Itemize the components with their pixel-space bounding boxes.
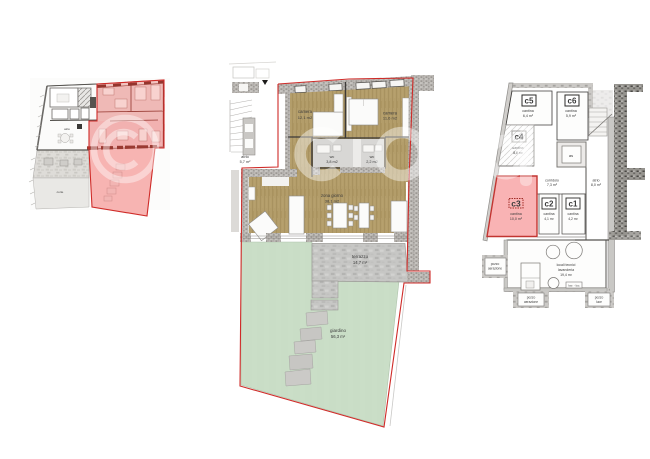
svg-text:8,0 m²: 8,0 m² — [591, 183, 602, 187]
svg-text:11,6 m2: 11,6 m2 — [383, 116, 398, 121]
svg-text:giardino: giardino — [330, 328, 347, 333]
svg-text:aerazione: aerazione — [524, 300, 538, 304]
svg-text:camera: camera — [298, 109, 313, 114]
svg-text:c1: c1 — [569, 200, 578, 209]
svg-text:10,0 m²: 10,0 m² — [510, 217, 523, 221]
svg-text:luce: luce — [596, 300, 602, 304]
svg-text:7,3 m²: 7,3 m² — [547, 183, 558, 187]
svg-text:c3: c3 — [511, 199, 521, 209]
svg-text:c2: c2 — [545, 200, 554, 209]
svg-text:5,9 m²: 5,9 m² — [566, 114, 577, 118]
svg-text:atrio: atrio — [593, 179, 600, 183]
svg-text:6,4 m²: 6,4 m² — [523, 114, 534, 118]
svg-text:atrio: atrio — [64, 127, 70, 131]
svg-text:cantina: cantina — [544, 212, 555, 216]
svg-text:56,3 m²: 56,3 m² — [331, 334, 346, 339]
svg-text:cantina: cantina — [510, 212, 522, 216]
svg-text:wc: wc — [370, 155, 375, 159]
svg-text:4,2 m²: 4,2 m² — [568, 217, 578, 221]
svg-text:14,7 m²: 14,7 m² — [353, 260, 368, 265]
svg-text:lav. - loc: lav. - loc — [569, 284, 580, 288]
svg-text:c5: c5 — [525, 97, 534, 106]
svg-text:5,7 m²: 5,7 m² — [240, 160, 251, 164]
svg-text:corridoio: corridoio — [545, 179, 559, 183]
svg-text:pozzo: pozzo — [595, 296, 604, 300]
svg-text:3,8 m2: 3,8 m2 — [326, 160, 338, 164]
svg-text:aerazione: aerazione — [488, 267, 502, 271]
svg-text:wc: wc — [330, 155, 335, 159]
svg-text:pozzo: pozzo — [491, 262, 500, 266]
svg-text:terrazzo: terrazzo — [352, 254, 369, 259]
svg-text:locali tecnici: locali tecnici — [557, 263, 576, 267]
svg-text:zona giorno: zona giorno — [321, 193, 344, 198]
svg-text:pozzo: pozzo — [527, 296, 536, 300]
svg-text:c6: c6 — [568, 97, 577, 106]
svg-text:cantina: cantina — [522, 109, 534, 113]
svg-text:cantina: cantina — [565, 109, 577, 113]
svg-text:corte: corte — [57, 190, 64, 194]
svg-text:as: as — [569, 153, 573, 158]
svg-text:cantina: cantina — [568, 212, 579, 216]
svg-text:atrio: atrio — [241, 154, 250, 159]
svg-text:19,4 m²: 19,4 m² — [560, 273, 573, 277]
svg-text:lavanderia: lavanderia — [558, 268, 574, 272]
svg-text:12,1 m2: 12,1 m2 — [298, 115, 313, 120]
svg-text:4,1 m²: 4,1 m² — [544, 217, 554, 221]
